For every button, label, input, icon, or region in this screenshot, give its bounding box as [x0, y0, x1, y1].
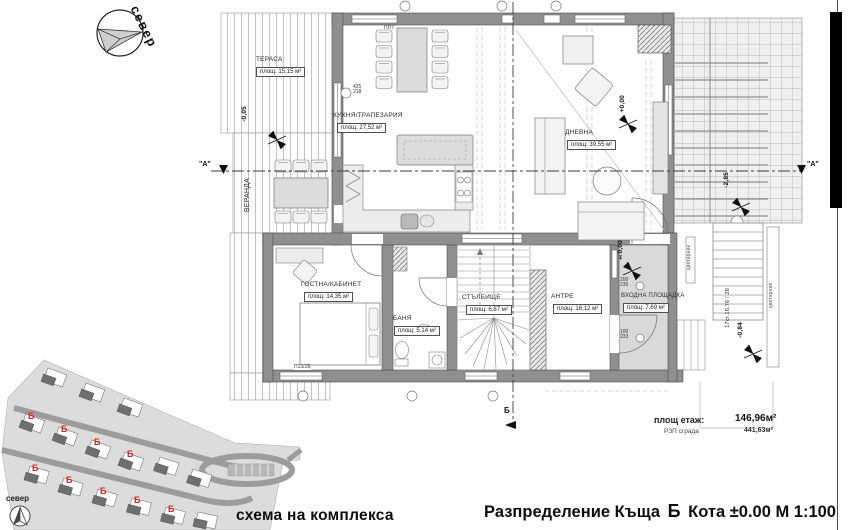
dim-door-2: 200 230 [620, 278, 628, 289]
garden-terrace-grid [674, 18, 802, 228]
site-house-mark: Б [127, 450, 133, 459]
room-label-hall: АНТРЕ [551, 294, 574, 301]
title-part1: Разпределение Къща [484, 503, 660, 521]
site-north-label: север [6, 494, 29, 503]
site-plan-caption: схема на комплекса [236, 507, 394, 525]
room-area-living: площ: 39,55 м² [567, 140, 616, 150]
room-area-hall: площ: 16,12 м² [553, 304, 602, 314]
level-living: +0,00 [620, 95, 627, 112]
room-label-entrance: ВХОДНА ПЛОЩАДКА [621, 293, 684, 299]
room-area-stairs: площ: 6,87 м² [466, 305, 512, 315]
black-margin-bar [830, 12, 842, 208]
room-label-stairs: СТЪЛБИЩЕ [462, 295, 501, 302]
title-house-mark: Б [668, 501, 681, 521]
summary-building-value: 441,63м² [744, 427, 773, 434]
room-label-guest: ГОСТНА/КАБИНЕТ [301, 282, 361, 289]
room-label-terrace: ТЕРАСА [256, 57, 283, 64]
entrance-side-steps [677, 320, 705, 370]
section-a-right: "А" [807, 161, 819, 168]
summary-floor-label: площ етаж: [654, 415, 704, 425]
level-entrance: ±0,00 [618, 240, 625, 261]
stairs-note: 17ст.16,76 / 28 [726, 288, 732, 328]
veranda-label: ВЕРАНДА [244, 178, 251, 212]
room-label-kitchen: КУХНЯ/ТРАПЕЗАРИЯ [333, 113, 403, 120]
planter-label-right: цветарник [769, 283, 774, 308]
dim-1-bot: 218 [353, 89, 361, 95]
site-house-mark: Б [66, 476, 72, 485]
dim-window-1: 425 218 [353, 85, 361, 96]
room-label-living: ДНЕВНА [565, 130, 593, 137]
window-tag-1: ПП7 [384, 26, 394, 31]
room-area-bath: площ: 5,14 м² [394, 326, 440, 336]
window-tag-2: П13/2В [294, 365, 311, 370]
site-house-mark: Б [28, 412, 34, 421]
room-area-terrace: площ: 15,15 м² [256, 67, 305, 77]
summary-floor-value: 146,96м² [735, 413, 776, 424]
site-house-mark: Б [100, 487, 106, 496]
planter-label-left: цветарник [687, 245, 692, 270]
room-area-guest: площ: 14,35 м² [304, 292, 353, 302]
site-house-mark: Б [168, 505, 174, 514]
bathroom-fixtures [393, 247, 445, 368]
level-terrace: -0,05 [242, 106, 249, 122]
dim-2-bot: 230 [620, 282, 628, 288]
summary-building-label: РЗП сграда [664, 428, 699, 435]
drawing-title: Разпределение Къща Б Кота ±0.00 М 1:100 [458, 501, 836, 522]
room-area-kitchen: площ: 27,52 м² [337, 123, 386, 133]
site-house-mark: Б [134, 496, 140, 505]
level-ext-stairs: -0,84 [738, 322, 745, 338]
dim-door-3: 100 233 [620, 330, 628, 341]
veranda-furniture [274, 160, 328, 223]
site-north-icon [10, 506, 30, 526]
section-b-label: Б [504, 406, 510, 415]
site-house-mark: Б [94, 438, 100, 447]
section-a-left: "А" [199, 161, 211, 168]
site-house-mark: Б [61, 425, 67, 434]
external-stairs [713, 223, 763, 320]
architectural-drawing-sheet: север ТЕРАСА площ: 15,15 м² КУХНЯ/ТРАПЕЗ… [0, 0, 848, 530]
room-area-entrance: площ: 7,69 м² [623, 303, 669, 313]
level-garden: -2,85 [724, 172, 731, 188]
room-label-bath: БАНЯ [393, 316, 412, 323]
site-house-mark: Б [32, 464, 38, 473]
title-part2: Кота ±0.00 М 1:100 [688, 503, 836, 521]
dim-3-bot: 233 [620, 334, 628, 340]
guest-room-furniture [276, 248, 380, 365]
